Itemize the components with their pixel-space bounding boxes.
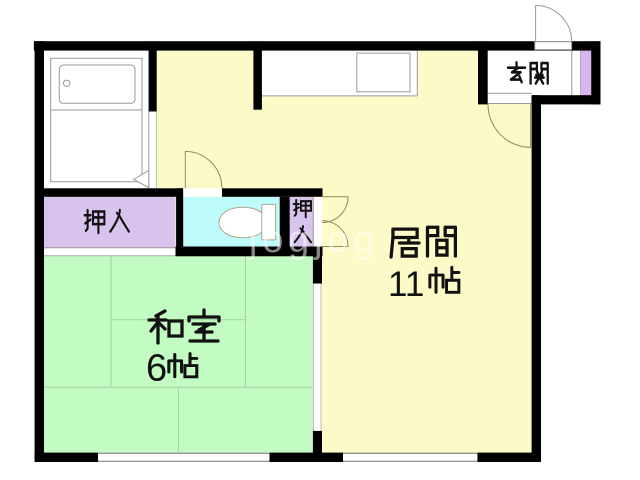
svg-text:jogjog: jogjog: [248, 219, 379, 261]
svg-text:6: 6: [146, 348, 167, 390]
svg-text:11: 11: [388, 265, 424, 304]
